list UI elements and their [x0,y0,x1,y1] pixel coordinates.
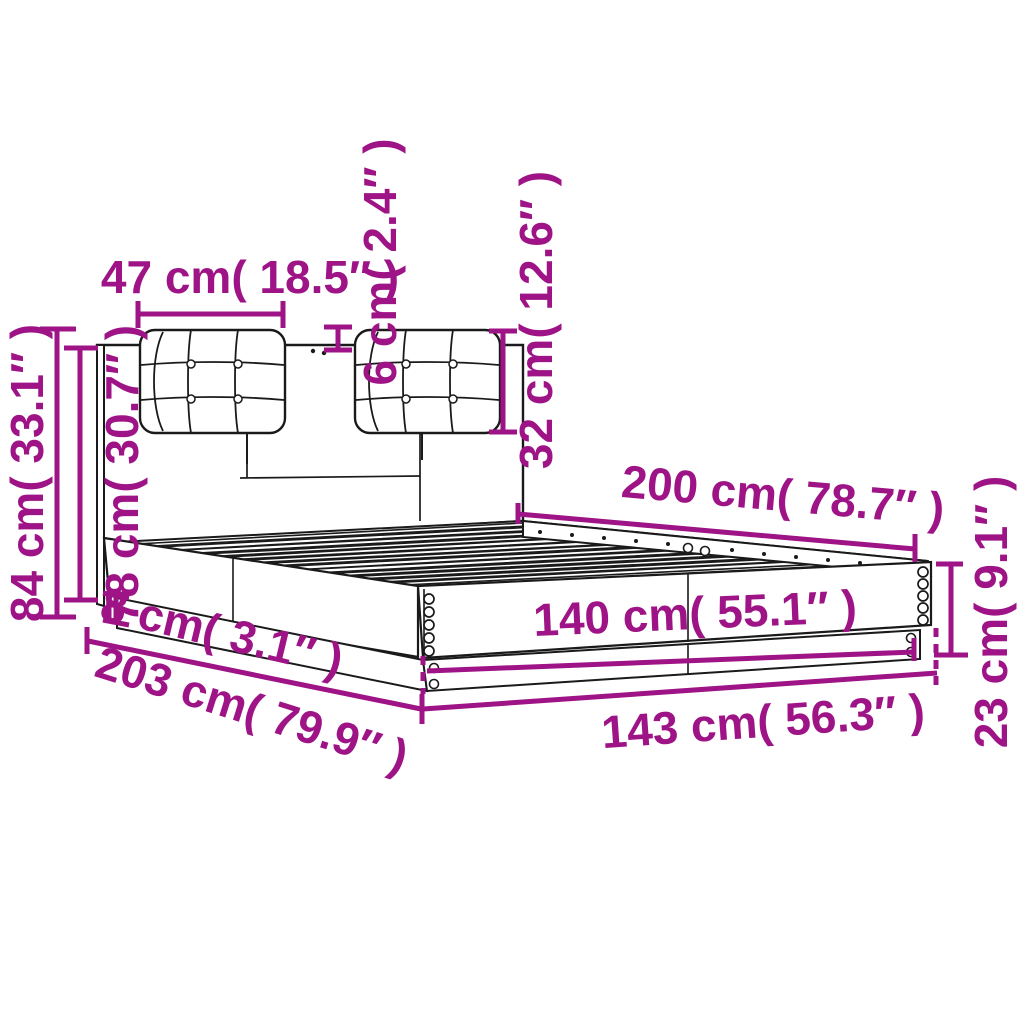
foot-right-holes [918,567,928,625]
label-headboard-height: 78 cm( 30.7″ ) [99,325,145,623]
label-cushion-thickness: 6 cm( 2.4″ ) [357,138,403,385]
label-total-height: 84 cm( 33.1″ ) [4,324,50,622]
bracket-cushion-width [138,301,283,328]
label-inner-width: 140 cm( 55.1″ ) [532,583,857,643]
far-rail-hole [684,544,693,553]
product-dimension-diagram: 47 cm( 18.5″ ) 6 cm( 2.4″ ) 32 cm( 12.6″… [0,0,1024,1024]
label-cushion-height: 32 cm( 12.6″ ) [513,171,559,469]
bracket-rail-height [934,564,968,655]
foot-left-holes [424,594,434,656]
far-rail-hole [701,547,710,556]
plinth-hole [430,680,439,689]
bracket-headboard-height [64,348,98,600]
label-rail-height: 23 cm( 9.1″ ) [968,476,1014,749]
